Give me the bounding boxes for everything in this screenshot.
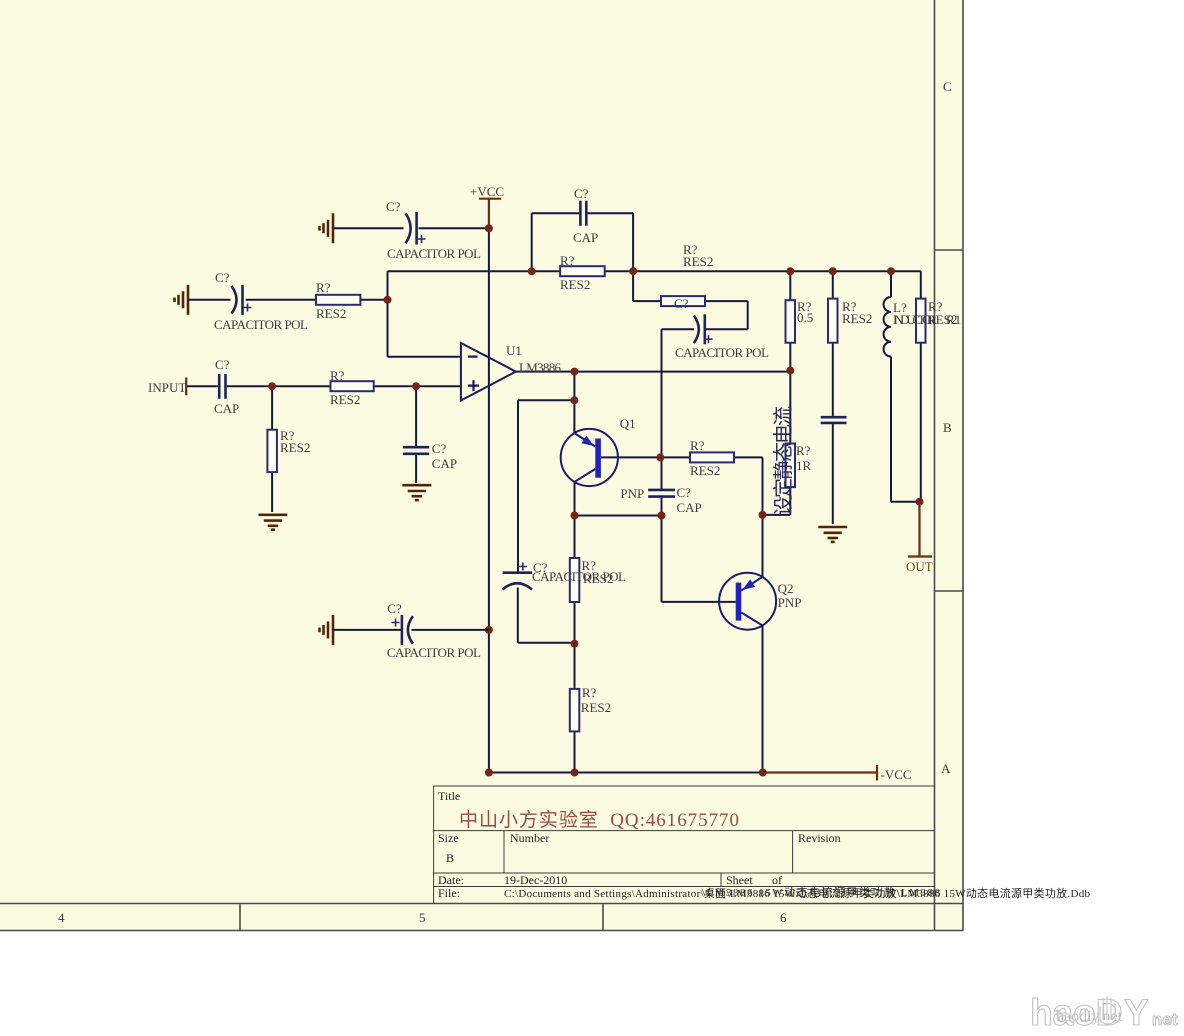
svg-text:RES2: RES2 xyxy=(330,392,360,407)
svg-text:CAPACITOR POL: CAPACITOR POL xyxy=(214,317,308,332)
svg-text:C?: C? xyxy=(215,270,230,285)
svg-text:B: B xyxy=(446,851,454,865)
svg-text:B: B xyxy=(943,420,952,435)
svg-text:RES2: RES2 xyxy=(280,440,310,455)
svg-text:Title: Title xyxy=(438,789,460,803)
svg-text:OUT: OUT xyxy=(906,559,933,574)
svg-text:RES2: RES2 xyxy=(583,571,613,586)
svg-text:R?: R? xyxy=(316,280,331,295)
svg-text:设定静态电流: 设定静态电流 xyxy=(772,406,795,516)
svg-text:R?: R? xyxy=(330,368,345,383)
svg-text:R?: R? xyxy=(582,685,597,700)
svg-text:+VCC: +VCC xyxy=(470,184,504,199)
svg-text:Q1: Q1 xyxy=(620,416,636,431)
svg-text:CAPACITOR POL: CAPACITOR POL xyxy=(387,246,481,261)
svg-text:RES2: RES2 xyxy=(560,277,590,292)
svg-text:R?: R? xyxy=(560,253,575,268)
svg-text:Number: Number xyxy=(510,831,549,845)
svg-text:RES2: RES2 xyxy=(683,254,713,269)
svg-text:File:: File: xyxy=(438,886,460,900)
svg-text:C:\Documents and Settings\Admi: C:\Documents and Settings\Administrator\… xyxy=(504,886,1091,900)
svg-text:C?: C? xyxy=(674,296,689,311)
svg-text:Size: Size xyxy=(438,831,459,845)
svg-text:CAP: CAP xyxy=(573,230,598,245)
svg-text:C?: C? xyxy=(386,199,401,214)
svg-text:C?: C? xyxy=(677,485,692,500)
svg-text:1R: 1R xyxy=(796,458,812,473)
svg-text:C?: C? xyxy=(215,357,230,372)
svg-text:Date:: Date: xyxy=(438,873,464,887)
svg-text:RES2: RES2 xyxy=(581,700,611,715)
svg-text:C?: C? xyxy=(574,186,589,201)
svg-text:CAP: CAP xyxy=(432,456,457,471)
svg-text:CAP: CAP xyxy=(677,500,702,515)
svg-text:R1: R1 xyxy=(946,312,961,327)
svg-text:6: 6 xyxy=(780,910,787,925)
svg-text:Revision: Revision xyxy=(798,831,841,845)
svg-text:中山小方实验室 QQ:461675770: 中山小方实验室 QQ:461675770 xyxy=(459,809,739,831)
svg-text:5: 5 xyxy=(419,910,426,925)
svg-text:RES2: RES2 xyxy=(842,311,872,326)
svg-text:0.5: 0.5 xyxy=(797,310,813,325)
svg-text:Y: Y xyxy=(1124,992,1149,1033)
svg-text:CAPACITOR POL: CAPACITOR POL xyxy=(675,345,769,360)
svg-text:R?: R? xyxy=(690,438,705,453)
svg-text:A: A xyxy=(941,761,951,776)
svg-text:R?: R? xyxy=(796,443,811,458)
svg-text:PNP: PNP xyxy=(620,486,644,501)
svg-text:RES2: RES2 xyxy=(316,306,346,321)
svg-text:U1: U1 xyxy=(506,343,522,358)
svg-text:Q2: Q2 xyxy=(778,581,794,596)
svg-text:-VCC: -VCC xyxy=(881,767,912,782)
svg-text:INPUT: INPUT xyxy=(148,380,186,395)
svg-text:C: C xyxy=(943,79,952,94)
svg-text:LM3886: LM3886 xyxy=(519,360,562,375)
svg-text:C?: C? xyxy=(387,601,402,616)
svg-text:19-Dec-2010: 19-Dec-2010 xyxy=(504,873,567,887)
svg-text:CAP: CAP xyxy=(214,401,239,416)
svg-text:PNP: PNP xyxy=(778,595,802,610)
svg-text:net: net xyxy=(1152,1010,1178,1029)
svg-text:of: of xyxy=(772,873,782,887)
svg-text:CAPACITOR POL: CAPACITOR POL xyxy=(387,645,481,660)
svg-text:RES2: RES2 xyxy=(690,463,720,478)
svg-text:C?: C? xyxy=(432,441,447,456)
svg-text:4: 4 xyxy=(58,910,65,925)
svg-text:Sheet: Sheet xyxy=(726,873,753,887)
